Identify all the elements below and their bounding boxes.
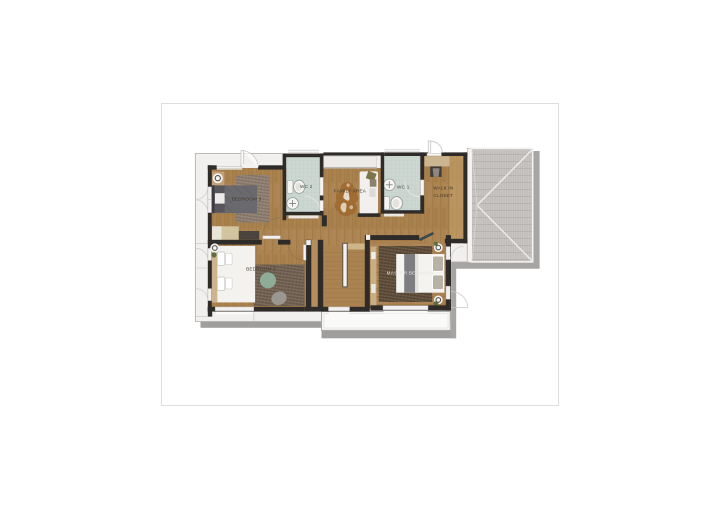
svg-text:MASTER BEDROOM: MASTER BEDROOM — [387, 271, 435, 276]
svg-text:BEDROOM 3: BEDROOM 3 — [232, 197, 262, 202]
svg-text:FAMILY AREA: FAMILY AREA — [334, 188, 367, 193]
svg-text:CLOSET: CLOSET — [433, 193, 453, 198]
svg-text:WALK IN: WALK IN — [433, 185, 453, 190]
svg-text:WC 1: WC 1 — [397, 185, 410, 190]
svg-text:BEDROOM 2: BEDROOM 2 — [246, 266, 276, 271]
svg-text:WC 2: WC 2 — [300, 184, 313, 189]
